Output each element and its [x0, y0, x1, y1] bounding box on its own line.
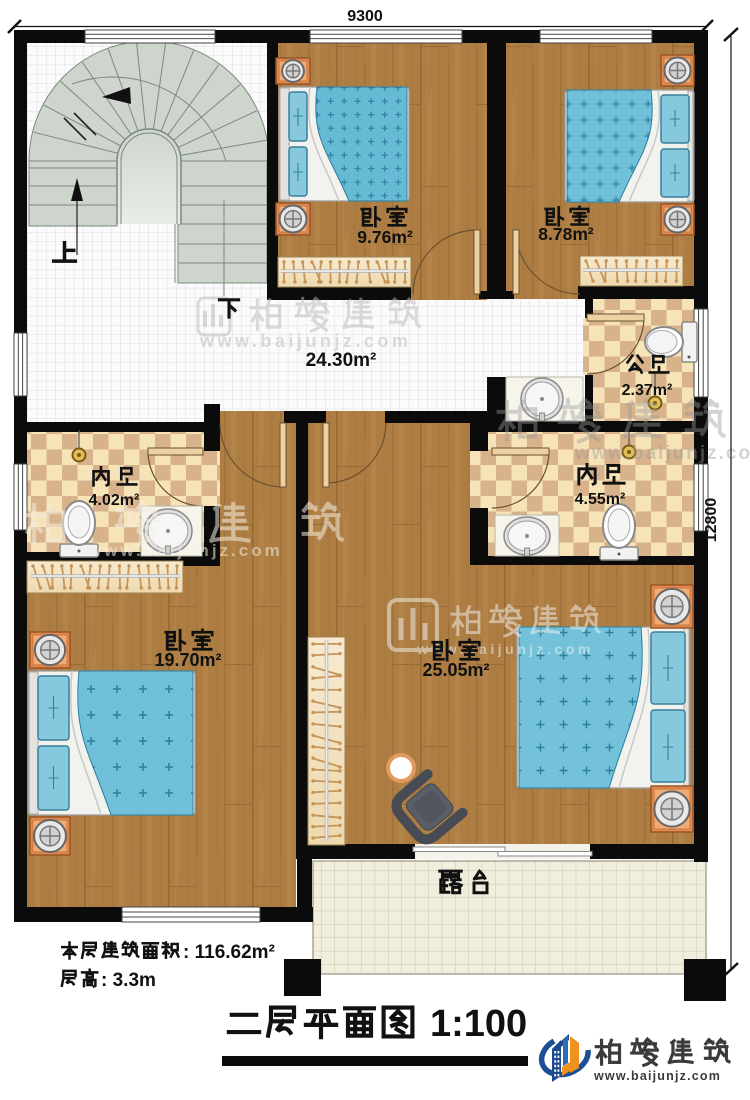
- svg-text:19.70m²: 19.70m²: [154, 650, 221, 670]
- svg-text:8.78m²: 8.78m²: [538, 224, 594, 244]
- svg-text:: 116.62m²: : 116.62m²: [183, 942, 275, 963]
- svg-text:2.37m²: 2.37m²: [622, 382, 673, 399]
- svg-text:www.baijunjz.com: www.baijunjz.com: [574, 443, 750, 464]
- svg-text:12800: 12800: [703, 498, 720, 543]
- svg-text:4.02m²: 4.02m²: [89, 492, 140, 509]
- svg-text:1:100: 1:100: [430, 1003, 527, 1045]
- svg-text:9300: 9300: [347, 8, 383, 25]
- svg-text:www.baijunjz.com: www.baijunjz.com: [199, 331, 411, 351]
- svg-text:24.30m²: 24.30m²: [306, 350, 377, 371]
- svg-text:: 3.3m: : 3.3m: [101, 970, 156, 991]
- svg-text:www.baijunjz.com: www.baijunjz.com: [593, 1069, 721, 1083]
- svg-text:25.05m²: 25.05m²: [422, 660, 489, 680]
- svg-text:4.55m²: 4.55m²: [575, 491, 626, 508]
- svg-text:9.76m²: 9.76m²: [357, 227, 413, 247]
- svg-text:www.baijunjz.com: www.baijunjz.com: [87, 541, 283, 560]
